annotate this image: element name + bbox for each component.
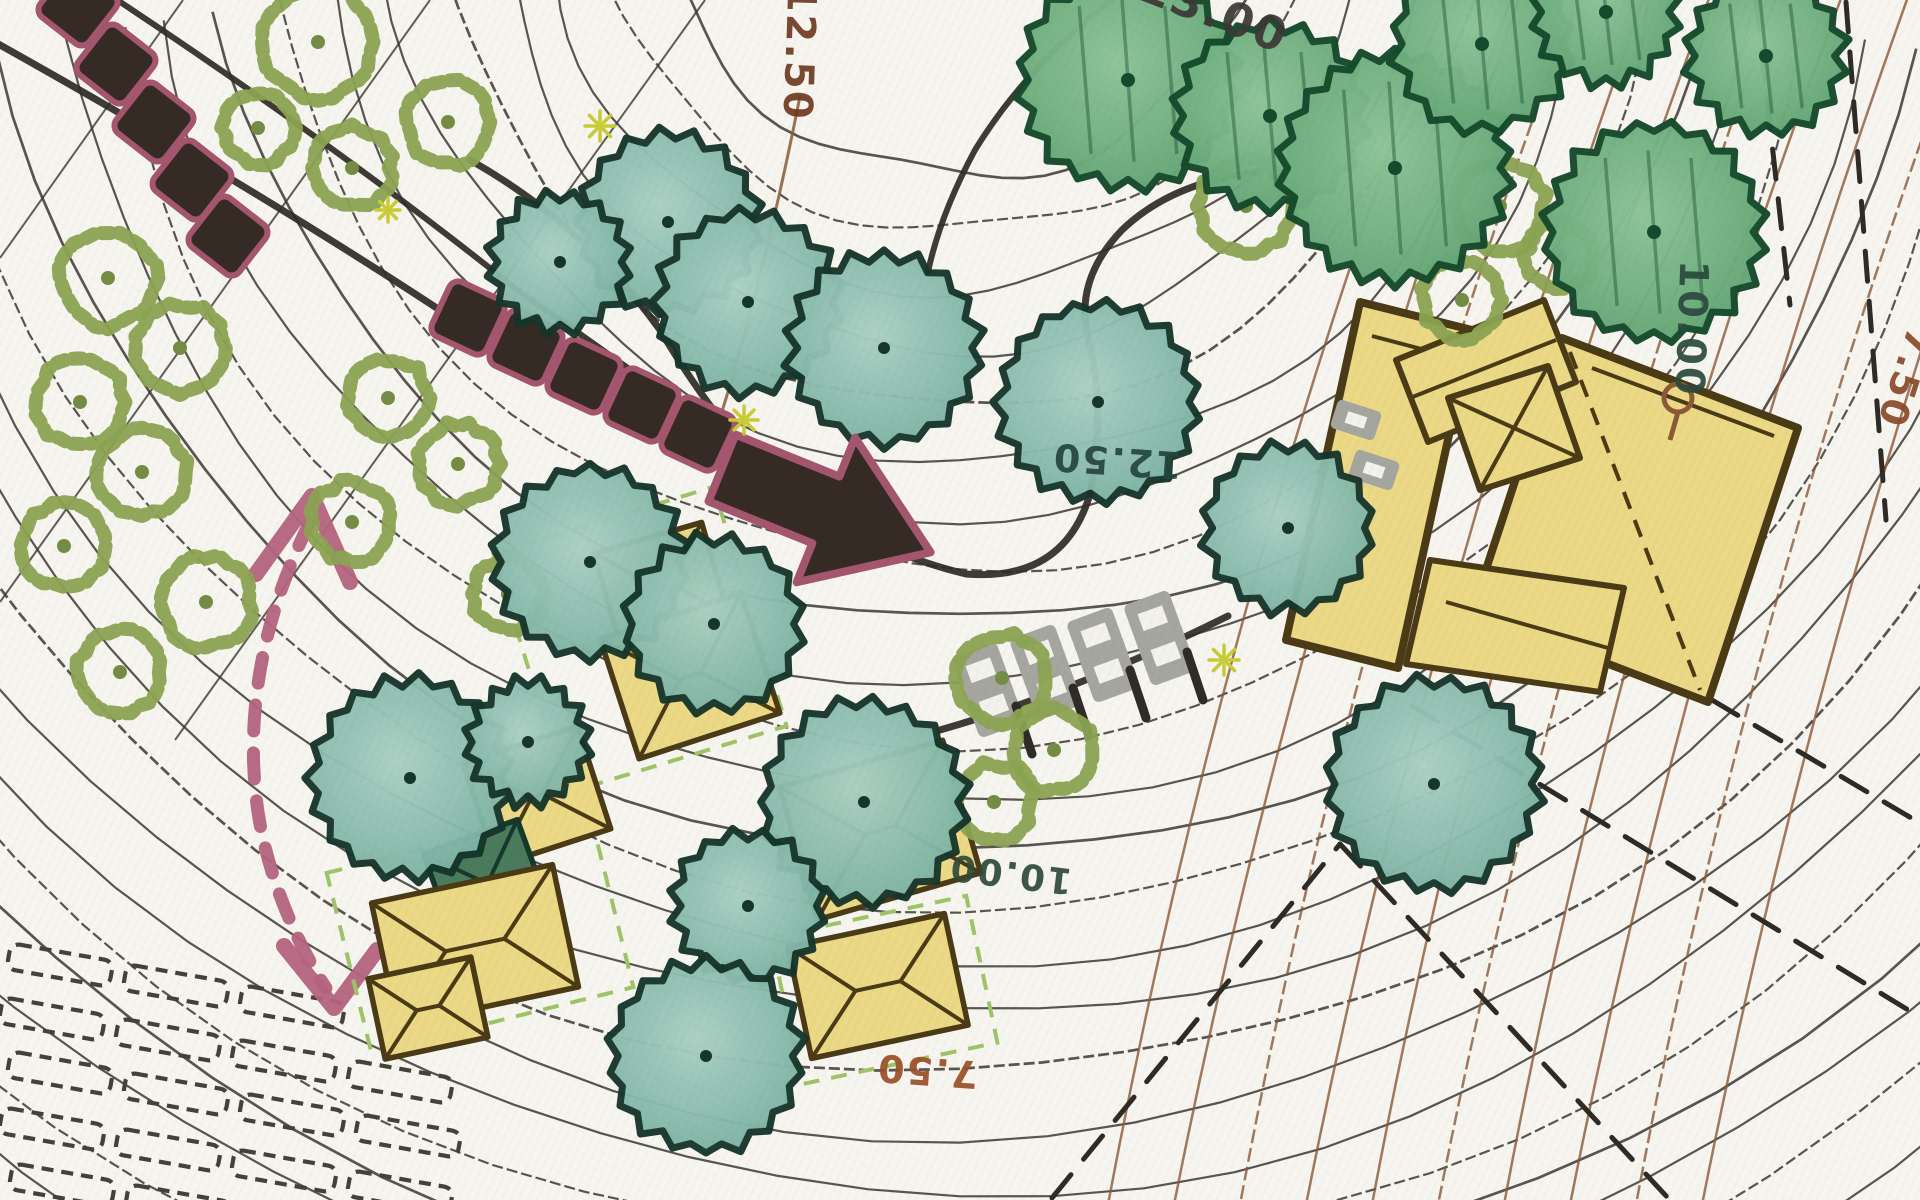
green-tree bbox=[1542, 122, 1767, 343]
elevation-label: 12.50 bbox=[774, 0, 825, 121]
sun-symbol bbox=[376, 198, 400, 222]
site-plan-drawing: 12.5013.0012.5010.007.5010.007.50 bbox=[0, 0, 1920, 1200]
teal-tree bbox=[1326, 674, 1544, 893]
house bbox=[368, 957, 488, 1059]
site-plan-page: 12.5013.0012.5010.007.5010.007.50 bbox=[0, 0, 1920, 1200]
elevation-label: 7.50 bbox=[875, 1045, 980, 1096]
elevation-label: 10.00 bbox=[1666, 259, 1717, 397]
elevation-label: 12.50 bbox=[1051, 434, 1184, 487]
sun-symbol bbox=[1209, 645, 1239, 675]
sun-symbol bbox=[730, 406, 758, 434]
sun-symbol bbox=[585, 111, 615, 141]
